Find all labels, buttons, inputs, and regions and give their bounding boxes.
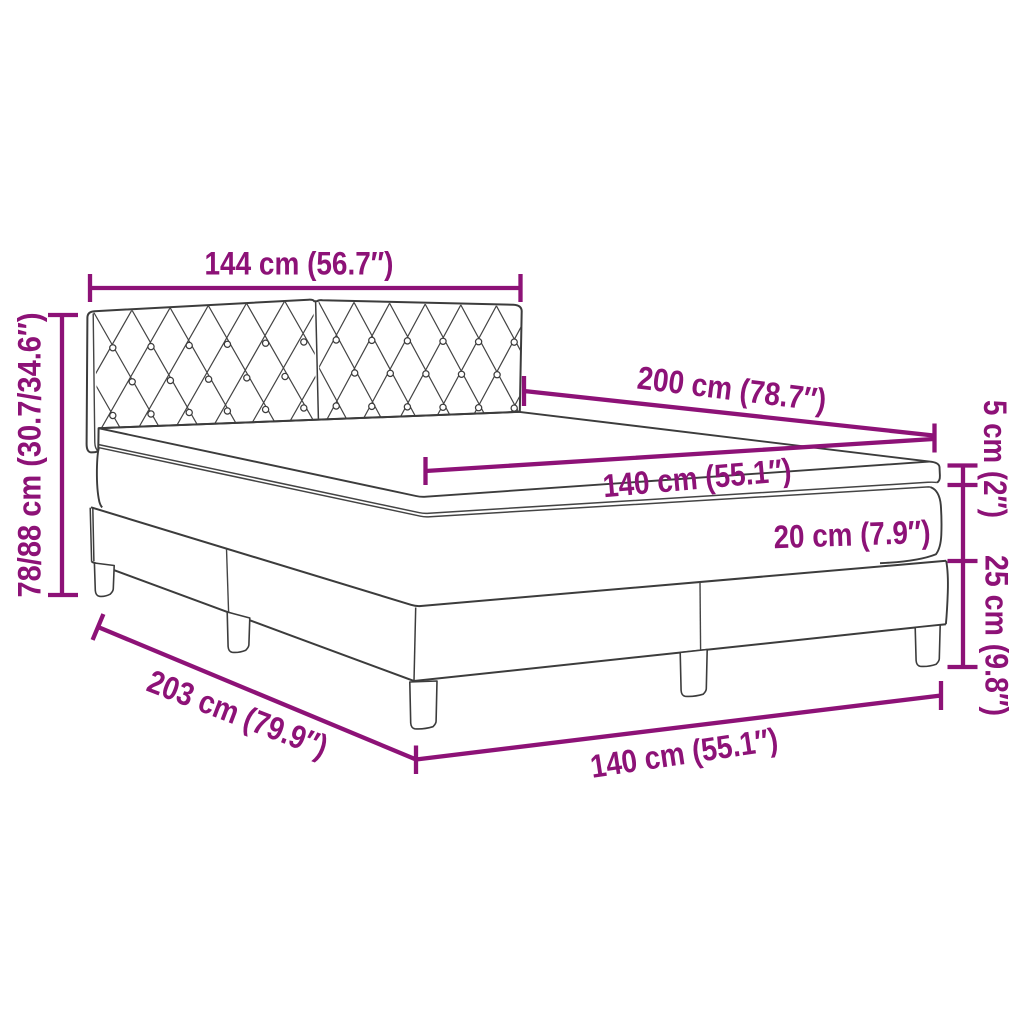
svg-text:144 cm (56.7″): 144 cm (56.7″)	[205, 246, 394, 282]
svg-text:25 cm (9.8″): 25 cm (9.8″)	[979, 555, 1015, 716]
svg-text:5 cm (2″): 5 cm (2″)	[977, 400, 1013, 518]
svg-text:78/88 cm (30.7/34.6″): 78/88 cm (30.7/34.6″)	[12, 313, 48, 598]
svg-text:20 cm (7.9″): 20 cm (7.9″)	[773, 514, 931, 555]
